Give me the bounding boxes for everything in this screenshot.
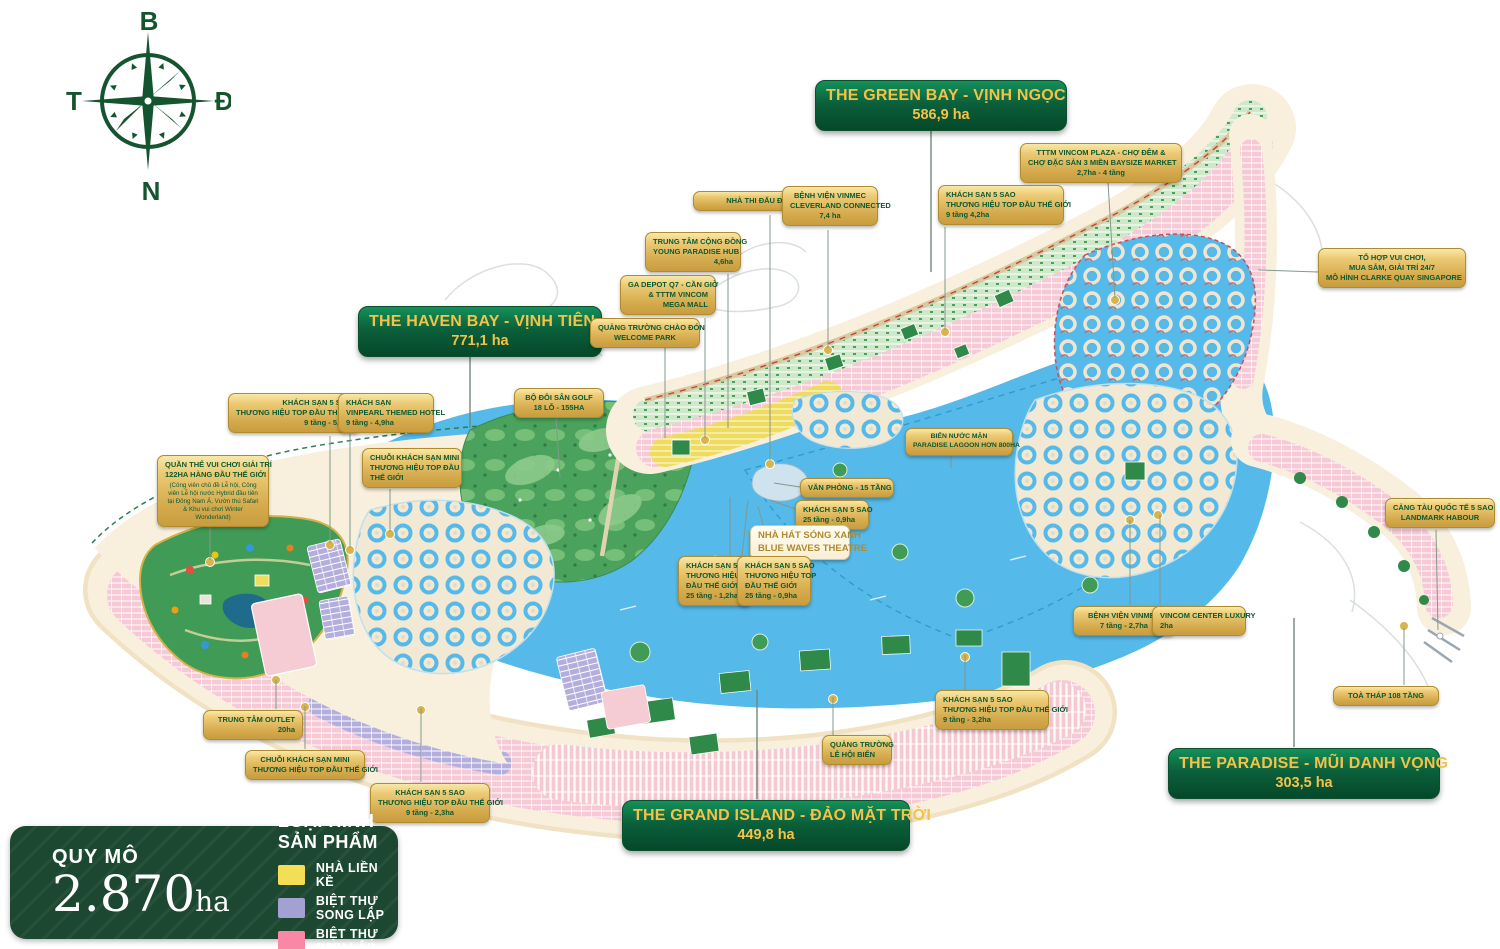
callout-line: 25 tầng - 0,9ha: [803, 515, 861, 525]
zone-area: 303,5 ha: [1179, 775, 1429, 791]
callout-line: CLEVERLAND CONNECTED: [790, 201, 870, 211]
callout-line: PARADISE LAGOON HƠN 800HA: [913, 442, 1005, 451]
masterplan-map: B N T Đ THE GREEN BAY - VỊNH NGỌC586,9 h…: [0, 0, 1500, 949]
callout-line: 4,6ha: [653, 257, 733, 267]
callout-line: THƯƠNG HIỆU TOP ĐẦU THẾ GIỚI: [943, 705, 1041, 715]
callout-trung-tam-cong-dong: TRUNG TÂM CỘNG ĐỒNGYOUNG PARADISE HUB4,6…: [645, 232, 741, 272]
callout-line: 2ha: [1160, 621, 1238, 631]
callout-line: TOÀ THÁP 108 TẦNG: [1341, 691, 1431, 701]
callout-line: THƯƠNG HIỆU TOP ĐẦU THẾ GIỚI: [378, 798, 482, 808]
callout-ga-depot: GA DEPOT Q7 - CẦN GIỜ& TTTM VINCOMMEGA M…: [620, 275, 716, 315]
callout-line: 18 LỖ - 155HA: [522, 403, 596, 413]
zone-banner-green-bay: THE GREEN BAY - VỊNH NGỌC586,9 ha: [815, 80, 1067, 131]
callout-toa-thap-108: TOÀ THÁP 108 TẦNG: [1333, 686, 1439, 706]
callout-line: 25 tầng - 0,9ha: [745, 591, 803, 601]
callout-line: THƯƠNG HIỆU TOP ĐẦU THẾ GIỚI: [946, 200, 1056, 210]
callout-line: WELCOME PARK: [598, 333, 692, 343]
zone-area: 586,9 ha: [826, 107, 1056, 123]
callout-line: ĐẦU THẾ GIỚI: [745, 581, 803, 591]
callout-line: 122HA HÀNG ĐẦU THẾ GIỚI: [165, 470, 261, 480]
scale-value: 2.870: [52, 865, 195, 923]
callout-line: QUẦN THỂ VUI CHƠI GIẢI TRÍ: [165, 460, 261, 470]
callout-line: MEGA MALL: [628, 300, 708, 310]
callout-line: 9 tầng - 5,2ha: [236, 418, 352, 428]
product-type-row: BIỆT THỰ ĐƠN LẬP: [278, 927, 398, 949]
callout-line: KHÁCH SẠN 5 SAO: [745, 561, 803, 571]
callout-line: THƯƠNG HIỆU TOP ĐẦU THẾ GIỚI: [236, 408, 352, 418]
callout-line: TTTM VINCOM PLAZA - CHỢ ĐÊM &: [1028, 148, 1174, 158]
callout-line: CHUỖI KHÁCH SẠN MINI: [253, 755, 357, 765]
callout-line: 20ha: [211, 725, 295, 735]
callout-line: BIỂN NƯỚC MẶN: [913, 433, 1005, 442]
callout-line: BỘ ĐÔI SÂN GOLF: [522, 393, 596, 403]
callout-line: KHÁCH SẠN 5 SAO: [686, 561, 744, 571]
callout-line: QUẢNG TRƯỜNG: [830, 740, 884, 750]
callout-chuoi-khach-san-mini-2: CHUỖI KHÁCH SẠN MINITHƯƠNG HIỆU TOP ĐẦU …: [245, 750, 365, 780]
callout-line: LANDMARK HABOUR: [1393, 513, 1487, 523]
callout-line: BỆNH VIỆN VINMEC: [790, 191, 870, 201]
legend-panel: QUY MÔ 2.870ha LOẠI HÌNH SẢN PHẨM NHÀ LI…: [10, 826, 398, 939]
callout-line: KHÁCH SẠN 5 SAO: [236, 398, 352, 408]
callout-line: MUA SẮM, GIẢI TRÍ 24/7: [1326, 263, 1458, 273]
callout-line: VĂN PHÒNG - 15 TẦNG: [808, 483, 886, 493]
zone-title: THE GRAND ISLAND - ĐẢO MẶT TRỜI: [633, 807, 899, 825]
callout-line: KHÁCH SẠN 5 SAO: [946, 190, 1056, 200]
zone-title: THE PARADISE - MŨI DANH VỌNG: [1179, 755, 1429, 773]
callout-line: LỄ HỘI BIỂN: [830, 750, 884, 760]
compass-south-label: N: [142, 176, 161, 203]
callout-tttm-vincom-plaza: TTTM VINCOM PLAZA - CHỢ ĐÊM &CHỢ ĐẶC SẢN…: [1020, 143, 1182, 183]
callout-line: THẾ GIỚI: [370, 473, 454, 483]
callout-line: CHUỖI KHÁCH SẠN MINI: [370, 453, 454, 463]
callout-line: NHÀ HÁT SÓNG XANH: [758, 530, 842, 543]
compass-east-label: Đ: [215, 86, 231, 116]
callout-line: KHÁCH SẠN 5 SAO: [943, 695, 1041, 705]
callout-line: 2,7ha - 4 tầng: [1028, 168, 1174, 178]
callout-line: 7,4 ha: [790, 211, 870, 221]
zone-title: THE GREEN BAY - VỊNH NGỌC: [826, 87, 1056, 105]
callout-line: THƯƠNG HIỆU TOP ĐẦU: [370, 463, 454, 473]
product-type-swatch: [278, 865, 305, 885]
callout-vinpearl-hotel: KHÁCH SẠNVINPEARL THEMED HOTEL9 tầng - 4…: [338, 393, 434, 433]
product-type-row: BIỆT THỰ SONG LẬP: [278, 894, 398, 922]
product-type-row: NHÀ LIỀN KỀ: [278, 861, 398, 889]
callout-line: 9 tầng - 3,2ha: [943, 715, 1041, 725]
callout-trung-tam-outlet: TRUNG TÂM OUTLET20ha: [203, 710, 303, 740]
zone-banner-paradise: THE PARADISE - MŨI DANH VỌNG303,5 ha: [1168, 748, 1440, 799]
compass-rose: B N T Đ: [66, 8, 231, 203]
callout-line: 9 tầng - 4,9ha: [346, 418, 426, 428]
callout-line: YOUNG PARADISE HUB: [653, 247, 733, 257]
callout-nha-hat-song-xanh: NHÀ HÁT SÓNG XANHBLUE WAVES THEATRE: [750, 525, 850, 560]
zone-banner-haven-bay: THE HAVEN BAY - VỊNH TIÊN771,1 ha: [358, 306, 602, 357]
callout-line: TRUNG TÂM CỘNG ĐỒNG: [653, 237, 733, 247]
callout-line: CHỢ ĐẶC SẢN 3 MIỀN BAYSIZE MARKET: [1028, 158, 1174, 168]
callout-line: KHÁCH SẠN 5 SAO: [803, 505, 861, 515]
callout-line: KHÁCH SẠN 5 SAO: [378, 788, 482, 798]
callout-line: 9 tầng 4,2ha: [946, 210, 1056, 220]
zone-area: 449,8 ha: [633, 827, 899, 843]
product-type-label: BIỆT THỰ SONG LẬP: [316, 894, 398, 922]
callout-line: VINCOM CENTER LUXURY: [1160, 611, 1238, 621]
zone-banner-grand-island: THE GRAND ISLAND - ĐẢO MẶT TRỜI449,8 ha: [622, 800, 910, 851]
callout-line: TRUNG TÂM OUTLET: [211, 715, 295, 725]
product-type-list: NHÀ LIỀN KỀBIỆT THỰ SONG LẬPBIỆT THỰ ĐƠN…: [278, 861, 398, 949]
callout-quan-the-vui-choi: QUẦN THỂ VUI CHƠI GIẢI TRÍ122HA HÀNG ĐẦU…: [157, 455, 269, 527]
callout-small-text: (Công viên chủ đề Lễ hội, Công viên Lễ h…: [165, 482, 261, 522]
callout-to-hop-vui-choi: TỔ HỢP VUI CHƠI,MUA SẮM, GIẢI TRÍ 24/7MÔ…: [1318, 248, 1466, 288]
product-type-label: BIỆT THỰ ĐƠN LẬP: [316, 927, 398, 949]
callout-vincom-center-luxury: VINCOM CENTER LUXURY2ha: [1152, 606, 1246, 636]
callout-line: THƯƠNG HIỆU TOP: [686, 571, 744, 581]
callout-quang-truong-le-hoi: QUẢNG TRƯỜNGLỄ HỘI BIỂN: [822, 735, 892, 765]
callout-line: TỔ HỢP VUI CHƠI,: [1326, 253, 1458, 263]
callout-line: ĐẦU THẾ GIỚI: [686, 581, 744, 591]
callout-line: MÔ HÌNH CLARKE QUAY SINGAPORE: [1326, 273, 1458, 283]
callout-bo-doi-san-golf: BỘ ĐÔI SÂN GOLF18 LỖ - 155HA: [514, 388, 604, 418]
callout-line: QUẢNG TRƯỜNG CHÀO ĐÓN: [598, 323, 692, 333]
compass-north-label: B: [140, 8, 159, 36]
scale-unit: ha: [195, 885, 230, 918]
product-type-swatch: [278, 931, 305, 949]
product-type-swatch: [278, 898, 305, 918]
callout-line: THƯƠNG HIỆU TOP ĐẦU THẾ GIỚI: [253, 765, 357, 775]
callout-van-phong: VĂN PHÒNG - 15 TẦNG: [800, 478, 894, 498]
callout-line: BLUE WAVES THEATRE: [758, 543, 842, 556]
zone-title: THE HAVEN BAY - VỊNH TIÊN: [369, 313, 591, 331]
callout-line: CẢNG TÀU QUỐC TẾ 5 SAO: [1393, 503, 1487, 513]
callout-line: VINPEARL THEMED HOTEL: [346, 408, 426, 418]
callout-quang-truong-chao-don: QUẢNG TRƯỜNG CHÀO ĐÓNWELCOME PARK: [590, 318, 700, 348]
callout-chuoi-khach-san-mini-1: CHUỖI KHÁCH SẠN MINITHƯƠNG HIỆU TOP ĐẦUT…: [362, 448, 462, 488]
callout-line: KHÁCH SẠN: [346, 398, 426, 408]
callout-benh-vien-cleverland: BỆNH VIỆN VINMECCLEVERLAND CONNECTED7,4 …: [782, 186, 878, 226]
callout-line: & TTTM VINCOM: [628, 290, 708, 300]
callout-khach-san-0-9ha-b: KHÁCH SẠN 5 SAOTHƯƠNG HIỆU TOPĐẦU THẾ GI…: [737, 556, 811, 606]
callout-bien-nuoc-man: BIỂN NƯỚC MẶNPARADISE LAGOON HƠN 800HA: [905, 428, 1013, 456]
zone-area: 771,1 ha: [369, 333, 591, 349]
compass-west-label: T: [66, 86, 82, 116]
product-types-title: LOẠI HÌNH SẢN PHẨM: [278, 811, 398, 853]
product-type-label: NHÀ LIỀN KỀ: [316, 861, 398, 889]
callout-khach-san-3-2ha: KHÁCH SẠN 5 SAOTHƯƠNG HIỆU TOP ĐẦU THẾ G…: [935, 690, 1049, 730]
callout-line: GA DEPOT Q7 - CẦN GIỜ: [628, 280, 708, 290]
callout-line: 25 tầng - 1,2ha: [686, 591, 744, 601]
callout-cang-tau-quoc-te: CẢNG TÀU QUỐC TẾ 5 SAOLANDMARK HABOUR: [1385, 498, 1495, 528]
callout-khach-san-4-2ha: KHÁCH SẠN 5 SAOTHƯƠNG HIỆU TOP ĐẦU THẾ G…: [938, 185, 1064, 225]
callout-line: THƯƠNG HIỆU TOP: [745, 571, 803, 581]
